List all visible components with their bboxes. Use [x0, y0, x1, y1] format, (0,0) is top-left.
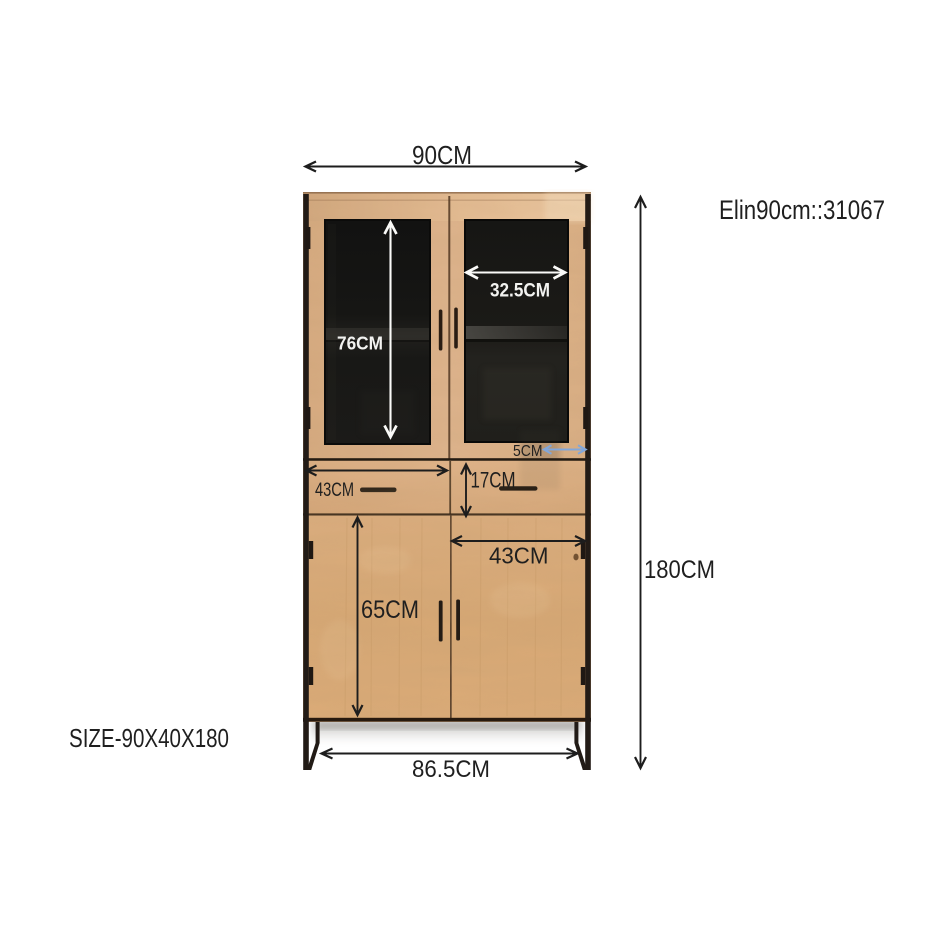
- svg-text:86.5CM: 86.5CM: [412, 756, 490, 783]
- svg-text:43CM: 43CM: [489, 543, 549, 569]
- svg-text:65CM: 65CM: [361, 596, 419, 624]
- svg-text:90CM: 90CM: [412, 140, 472, 170]
- svg-text:32.5CM: 32.5CM: [490, 280, 550, 302]
- svg-text:180CM: 180CM: [644, 556, 715, 584]
- svg-text:43CM: 43CM: [315, 480, 354, 501]
- svg-text:Elin90cm::31067: Elin90cm::31067: [719, 195, 885, 225]
- svg-text:5CM: 5CM: [513, 443, 543, 460]
- svg-text:17CM: 17CM: [471, 468, 516, 493]
- svg-text:76CM: 76CM: [337, 333, 383, 354]
- svg-text:SIZE-90X40X180: SIZE-90X40X180: [69, 723, 229, 753]
